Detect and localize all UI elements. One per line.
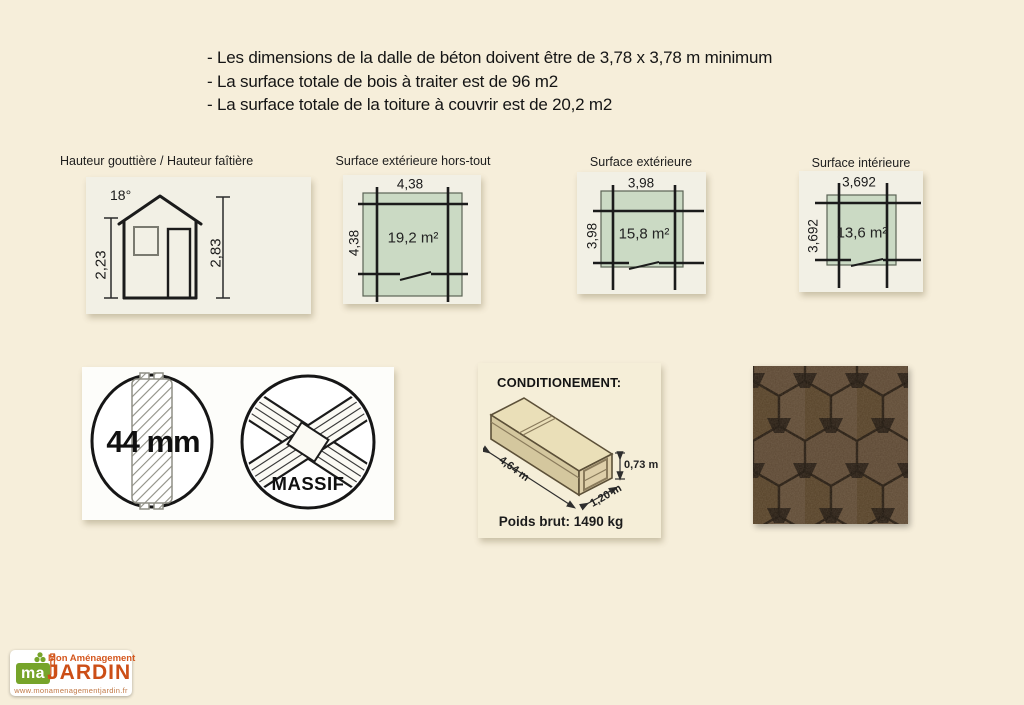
shed-window [134,227,158,255]
caption-interior: Surface intérieure [812,156,911,170]
caption-exterior-overall: Surface extérieure hors-tout [336,154,491,168]
plan-depth-label: 3,692 [806,219,821,253]
logo-brand-line2: JARDIN [47,661,131,685]
plan-width-label: 3,98 [628,176,654,191]
gutter-height-label: 2,23 [93,250,110,279]
gross-weight-label: Poids brut: 1490 kg [486,514,636,529]
panel-heights-diagram: 18° 2,23 2,83 [86,177,311,314]
intro-notes: - Les dimensions de la dalle de béton do… [207,46,772,117]
plan-depth-label: 3,98 [585,223,600,249]
panel-interior-plan: 3,692 3,692 13,6 m² [799,171,923,292]
intro-line-concrete-slab: - Les dimensions de la dalle de béton do… [207,46,772,70]
shingle-pattern [753,366,908,524]
clover-icon [34,652,46,663]
roof-angle-label: 18° [110,187,131,203]
panel-packaging: CONDITIONEMENT: 4,64 m 1,20 m 0,73 m Poi… [478,363,661,538]
material-label: MASSIF [246,473,370,495]
ridge-height-label: 2,83 [208,238,225,267]
shed-door [168,229,190,298]
crate-height-label: 0,73 m [624,459,658,471]
logo-monogram: ma [16,663,50,684]
plan-depth-label: 4,38 [347,230,362,256]
plan-area-label: 13,6 m² [837,225,888,242]
plan-width-label: 4,38 [397,177,423,192]
plan-area-label: 15,8 m² [619,226,670,243]
caption-heights: Hauteur gouttière / Hauteur faîtière [60,154,253,168]
shed-outline [119,196,201,298]
panel-wood-badges: 44 mm MASSIF [82,367,394,520]
packaging-title: CONDITIONEMENT: [497,375,621,390]
brand-logo: ma j Mon Aménagement JARDIN www.monamena… [10,650,132,696]
plan-area-label: 19,2 m² [388,230,439,247]
plan-width-label: 3,692 [842,175,876,190]
panel-exterior-plan: 3,98 3,98 15,8 m² [577,172,706,294]
thickness-label: 44 mm [92,424,214,460]
intro-line-roof-surface: - La surface totale de la toiture à couv… [207,93,772,117]
logo-url: www.monamenagementjardin.fr [10,686,132,695]
caption-exterior: Surface extérieure [590,155,692,169]
panel-exterior-overall-plan: 4,38 4,38 19,2 m² [343,175,481,304]
crate-drawing [483,397,655,512]
intro-line-wood-surface: - La surface totale de bois à traiter es… [207,70,772,94]
shingle-texture-swatch [753,366,908,524]
